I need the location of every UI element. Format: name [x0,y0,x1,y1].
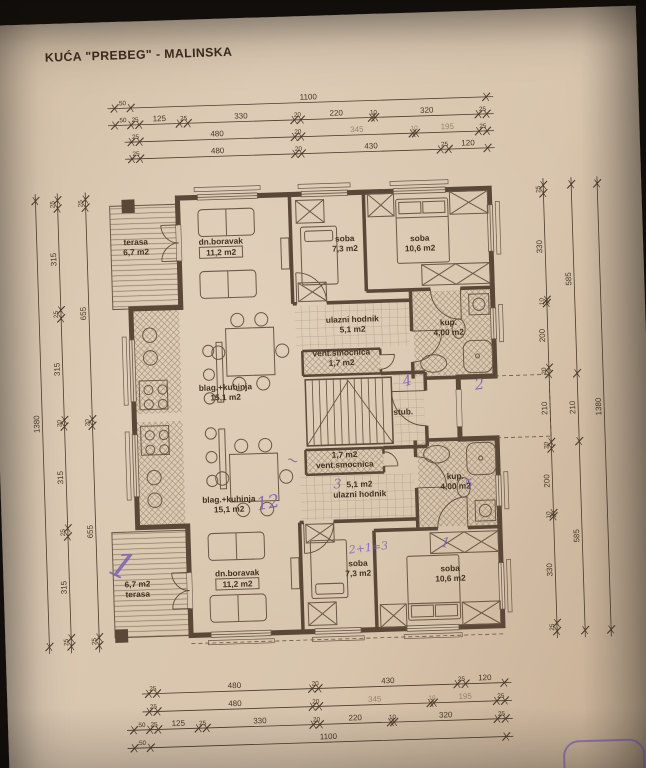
dim-chain-bottom-4: 501100 [127,726,513,752]
dim-label: 210 [568,400,577,414]
floor-plan-drawing: 5011005025125253302022010320252548020345… [0,0,646,768]
dim-label: 200 [538,328,547,342]
dim-label: 25 [132,151,140,158]
dim-label: 25 [150,721,158,728]
dim-label: 330 [535,239,544,253]
dim-label: 50 [138,722,146,729]
room-label-soba-small-upper: soba7,3 m2 [332,233,358,254]
dim-chain-right-2: 585210585 [561,177,589,637]
dim-label: 195 [440,122,454,131]
dim-label: 25 [199,720,207,727]
dim-label: 25 [441,141,449,148]
dim-label: 50 [139,740,147,747]
dim-label: 25 [535,185,542,193]
dim-chain-top-1: 501100 [107,87,493,113]
dim-label: 195 [458,692,472,701]
dim-label: 25 [479,123,487,130]
dim-label: 10 [545,511,552,519]
dim-label: 480 [211,146,225,155]
dim-label: 1100 [300,92,318,102]
dim-label: 20 [84,419,91,427]
dim-label: 315 [56,470,65,484]
room-label-stub: stub. [393,406,413,417]
dim-label: 20 [313,716,321,723]
room-label-smocnica-lower: 1,7 m2vent.smocnica [316,448,374,470]
pen-mark [563,738,646,768]
dim-label: 25 [458,676,466,683]
handwritten-mark: 12 [255,491,281,516]
dim-label: 25 [479,106,487,113]
dim-chain-left-2: 2531525315203152531525 [47,193,75,653]
dim-label: 25 [49,200,56,208]
dim-label: 1380 [32,415,42,434]
dim-chain-top-3: 25480203451019525 [124,121,494,147]
dim-label: 320 [439,710,453,719]
dim-label: 315 [49,252,58,266]
dim-label: 315 [52,362,61,376]
dim-label: 210 [540,401,549,415]
dim-label: 25 [91,637,98,645]
dim-chain-right-3: 1380 [587,176,615,636]
handwritten-mark: 5 [464,477,473,492]
dim-label: 50 [119,100,127,107]
room-label-soba-big-upper: soba10,6 m2 [404,232,435,253]
handwritten-mark: 3 [333,477,342,492]
dim-label: 20 [294,129,302,136]
dim-label: 25 [498,711,506,718]
dim-label: 330 [253,716,267,725]
dim-label: 25 [53,310,60,318]
dim-chain-bottom-3: 502512525330202201032025 [127,708,513,734]
dim-label: 10 [428,695,436,702]
room-label-boravak-upper: dn.boravak11,2 m2 [198,235,243,259]
dim-label: 25 [63,638,70,646]
room-label-terasa-upper: terasa6,7 m2 [123,236,149,257]
dim-label: 200 [542,474,551,488]
dim-label: 25 [60,528,67,536]
dim-label: 25 [180,115,188,122]
dim-label: 20 [56,419,63,427]
dim-label: 1380 [594,397,604,416]
dim-label: 20 [294,112,302,119]
dim-label: 330 [234,111,248,120]
dim-label: 25 [132,134,140,141]
dim-label: 25 [131,117,139,124]
dim-chain-bottom-2: 25480203451019525 [142,690,512,716]
dim-label: 120 [461,138,475,147]
dim-label: 20 [312,698,320,705]
dim-label: 25 [549,623,556,631]
dim-chain-top-4: 254802043025120 [125,138,495,164]
dim-label: 10 [539,297,546,305]
room-label-kuhinja-lower: blag.+kuhinja15,1 m2 [202,493,256,515]
dim-chain-bottom-1: 254802043025120 [142,672,512,698]
dim-label: 25 [497,693,505,700]
dim-label: 120 [478,673,492,682]
dim-label: 220 [329,108,343,117]
dim-label: 25 [149,686,157,693]
dim-label: 20 [543,441,550,449]
dim-label: 10 [411,125,419,132]
dim-label: 655 [86,524,95,538]
dim-label: 125 [153,114,167,123]
dim-label: 25 [150,703,158,710]
dim-label: 20 [541,367,548,375]
dim-label: 345 [368,694,382,703]
dim-label: 320 [420,106,434,115]
room-label-boravak-lower: dn.boravak11,2 m2 [215,567,260,591]
dim-label: 50 [119,117,127,124]
dim-label: 585 [564,272,573,286]
dim-label: 345 [350,125,364,134]
dim-chain-right-1: 253301020020210202001033025 [533,178,561,638]
handwritten-mark: 2 [474,375,486,394]
dim-label: 220 [348,713,362,722]
dim-label: 20 [295,146,303,153]
photo-of-floor-plan: 5011005025125253302022010320252548020345… [0,0,646,768]
dim-label: 585 [572,528,581,542]
dim-label: 480 [228,681,242,690]
dim-label: 430 [364,141,378,150]
dim-label: 125 [172,719,186,728]
dim-label: 655 [79,306,88,320]
dim-label: 430 [381,676,395,685]
room-label-kuhinja-upper: blag.+kuhinja15,1 m2 [199,381,253,403]
dim-label: 1100 [320,732,338,742]
dim-label: 480 [228,699,242,708]
dim-label: 480 [210,129,224,138]
dim-label: 330 [545,562,554,576]
dim-label: 10 [370,109,378,116]
dim-label: 315 [59,580,68,594]
room-label-terasa-lower: 6,7 m2terasa [124,579,150,600]
dim-label: 20 [312,680,320,687]
dim-chain-top-2: 502512525330202201032025 [108,104,494,130]
room-label-kup-upper: kup.4,00 m2 [433,317,464,338]
room-label-smocnica-upper: vent.smocnica1,7 m2 [312,347,370,369]
room-label-hodnik-upper: ulazni hodnik5,1 m2 [326,313,380,335]
dim-label: 25 [77,200,84,208]
dim-chain-left-1: 256552065525 [75,192,103,652]
room-label-soba-big-lower: soba10,6 m2 [435,563,466,584]
dim-label: 10 [389,714,397,721]
drawing-sheet: 5011005025125253302022010320252548020345… [0,0,646,768]
room-label-soba-small-lower: soba7,3 m2 [345,558,371,579]
staircase [305,377,393,446]
